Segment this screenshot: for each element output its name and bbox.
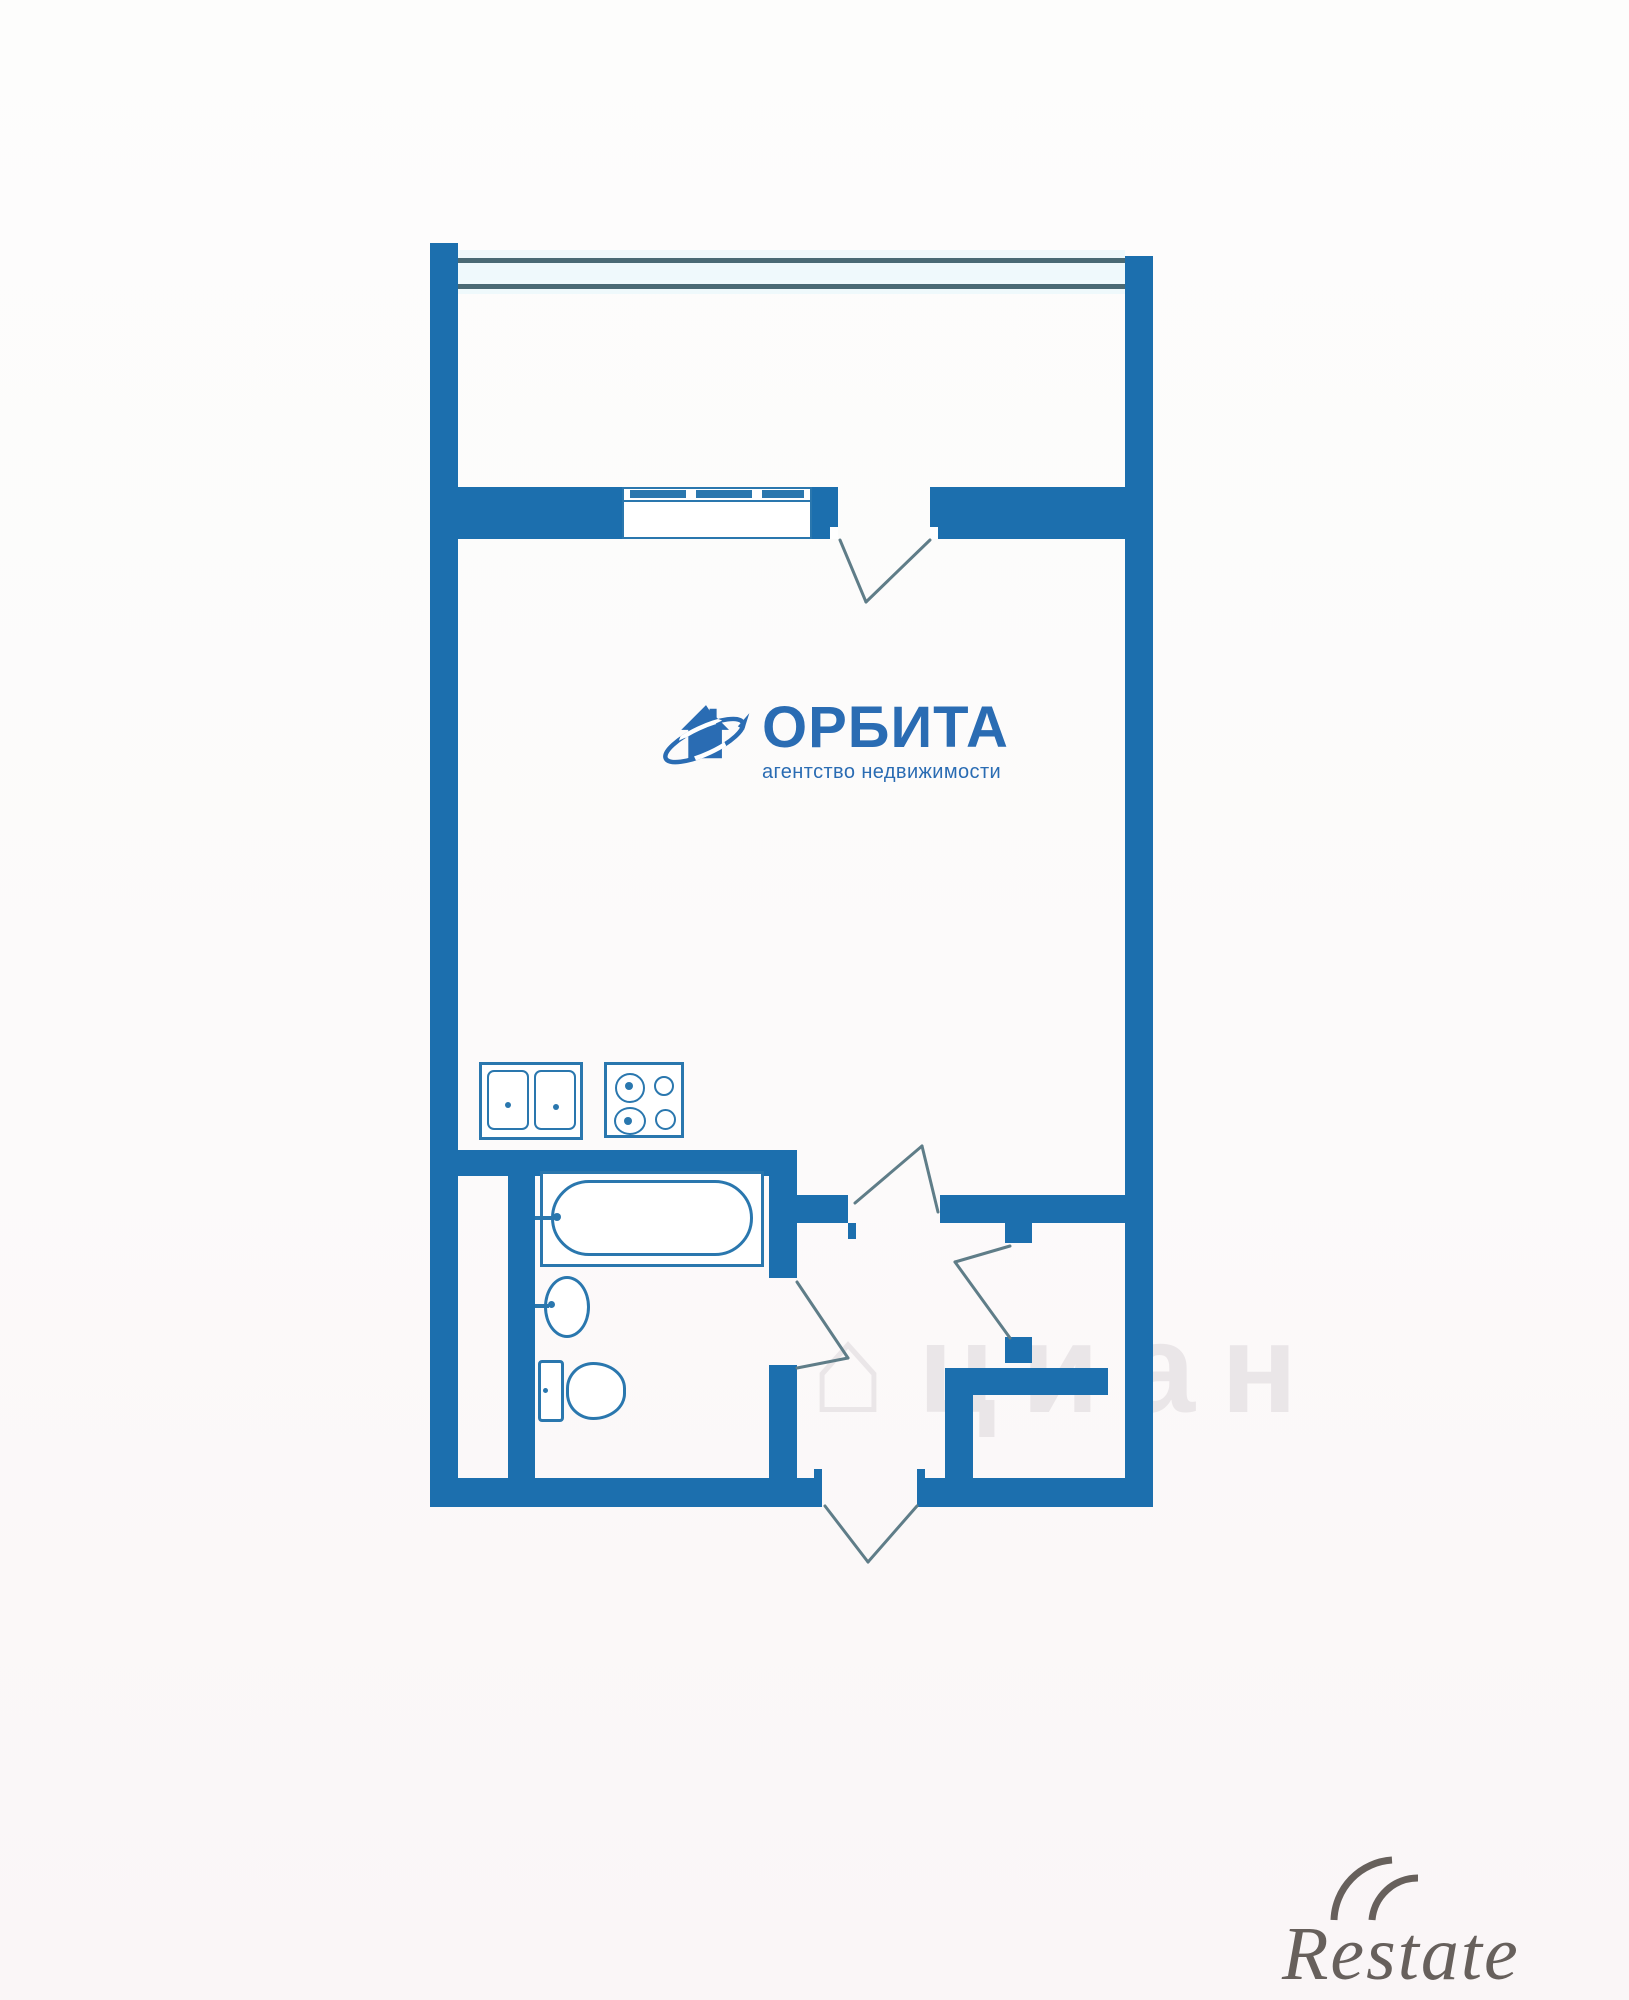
- restate-watermark: Restate: [1282, 1854, 1520, 1992]
- burner-center: [624, 1117, 632, 1125]
- floor-plan-canvas: ⌂циан: [0, 0, 1629, 2000]
- door-jamb: [917, 1469, 925, 1478]
- basin-tap: [535, 1304, 549, 1308]
- wall-bottom-right: [917, 1478, 1153, 1507]
- balcony-window: [622, 487, 812, 539]
- wall-bottom-left: [430, 1478, 822, 1507]
- agency-logo: ОРБИТА агентство недвижимости: [660, 698, 1009, 784]
- house-orbit-icon: [660, 698, 752, 776]
- toilet-bowl: [566, 1362, 626, 1420]
- four-burner-stove: [604, 1062, 684, 1138]
- wall-right: [1125, 256, 1153, 1507]
- wall-balcony-divider: [430, 487, 622, 539]
- entry-door-swing: [868, 1506, 917, 1562]
- house-icon: ⌂: [810, 1298, 912, 1439]
- balcony-glazing-window: [458, 284, 1125, 289]
- door-jamb: [848, 1223, 856, 1239]
- door-jamb: [1005, 1223, 1032, 1243]
- burner-small: [655, 1109, 676, 1130]
- sink-basin-right: [534, 1070, 576, 1130]
- door-jamb: [830, 527, 838, 539]
- burner-small: [654, 1076, 674, 1096]
- wall-left: [430, 243, 458, 1507]
- sink-drain: [553, 1104, 559, 1110]
- wall-bathroom-left: [508, 1176, 535, 1478]
- sink-drain: [505, 1102, 511, 1108]
- wall-closet-top: [945, 1368, 1108, 1395]
- balcony-glazing-window: [458, 258, 1125, 263]
- agency-tagline: агентство недвижимости: [762, 761, 1009, 784]
- wall-balcony-divider: [930, 487, 1125, 539]
- wall-hall-right: [940, 1195, 1125, 1223]
- entry-door-swing: [825, 1506, 868, 1562]
- bathtub-basin: [551, 1180, 753, 1256]
- room-balcony: [458, 294, 1125, 487]
- door-jamb: [1005, 1337, 1032, 1363]
- agency-brand-name: ОРБИТА: [762, 698, 1009, 759]
- door-jamb: [930, 527, 938, 539]
- wall-closet-left: [945, 1395, 973, 1478]
- basin-tap-dot: [548, 1301, 555, 1308]
- door-jamb: [814, 1469, 822, 1478]
- restate-watermark-text: Restate: [1282, 1916, 1520, 1992]
- bathtub: [540, 1171, 764, 1267]
- wall-hall-left: [797, 1195, 848, 1223]
- burner-center: [625, 1082, 633, 1090]
- toilet-tank-dot: [543, 1388, 548, 1393]
- sink-basin-left: [487, 1070, 529, 1130]
- toilet-tank: [538, 1360, 564, 1422]
- bathtub-tap-dot: [553, 1213, 561, 1221]
- bathtub-tap: [535, 1216, 553, 1220]
- double-kitchen-sink: [479, 1062, 583, 1140]
- wall-bathroom-right-upper: [769, 1176, 797, 1278]
- wall-bathroom-right-lower: [769, 1365, 797, 1478]
